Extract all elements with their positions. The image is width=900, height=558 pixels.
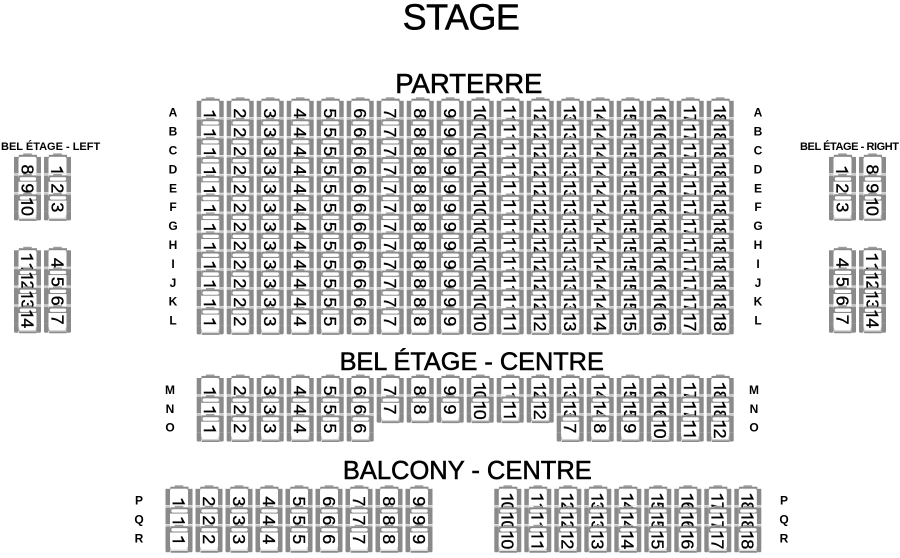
svg-text:2: 2: [230, 108, 250, 118]
svg-text:8: 8: [410, 165, 430, 175]
svg-text:7: 7: [832, 315, 852, 325]
svg-text:8: 8: [862, 165, 882, 175]
svg-text:2: 2: [832, 183, 852, 193]
svg-text:6: 6: [350, 108, 370, 118]
svg-text:6: 6: [350, 316, 370, 326]
svg-text:8: 8: [379, 515, 399, 525]
svg-text:4: 4: [290, 241, 310, 251]
svg-text:3: 3: [229, 534, 249, 544]
svg-text:8: 8: [410, 241, 430, 251]
svg-text:7: 7: [708, 539, 728, 549]
svg-text:7: 7: [380, 279, 400, 289]
svg-text:7: 7: [380, 316, 400, 326]
svg-text:5: 5: [320, 165, 340, 175]
svg-text:6: 6: [350, 279, 370, 289]
svg-text:9: 9: [440, 165, 460, 175]
svg-text:8: 8: [410, 405, 430, 415]
svg-text:3: 3: [260, 316, 280, 326]
svg-text:4: 4: [290, 423, 310, 433]
svg-text:3: 3: [260, 127, 280, 137]
svg-text:7: 7: [380, 386, 400, 396]
svg-text:0: 0: [17, 206, 37, 216]
svg-text:9: 9: [440, 297, 460, 307]
svg-text:7: 7: [680, 322, 700, 332]
svg-text:3: 3: [229, 496, 249, 506]
svg-text:2: 2: [230, 146, 250, 156]
svg-text:3: 3: [260, 279, 280, 289]
svg-text:9: 9: [440, 222, 460, 232]
svg-text:I: I: [171, 257, 174, 271]
svg-text:0: 0: [470, 322, 490, 332]
svg-text:E: E: [169, 181, 177, 195]
svg-text:H: H: [169, 238, 178, 252]
svg-text:7: 7: [380, 165, 400, 175]
svg-text:2: 2: [230, 316, 250, 326]
svg-text:2: 2: [530, 410, 550, 420]
svg-text:2: 2: [558, 539, 578, 549]
svg-text:8: 8: [410, 184, 430, 194]
svg-text:3: 3: [260, 260, 280, 270]
svg-text:D: D: [169, 162, 178, 176]
svg-text:4: 4: [290, 165, 310, 175]
svg-text:3: 3: [260, 297, 280, 307]
svg-text:9: 9: [440, 203, 460, 213]
svg-text:2: 2: [230, 203, 250, 213]
svg-text:C: C: [754, 144, 763, 158]
svg-text:6: 6: [319, 534, 339, 544]
svg-text:G: G: [168, 219, 177, 233]
svg-text:F: F: [169, 200, 176, 214]
svg-text:O: O: [749, 421, 758, 435]
svg-text:4: 4: [259, 534, 279, 544]
svg-text:6: 6: [350, 297, 370, 307]
svg-text:3: 3: [260, 165, 280, 175]
svg-text:6: 6: [319, 515, 339, 525]
svg-text:A: A: [169, 106, 178, 120]
svg-text:5: 5: [320, 241, 340, 251]
svg-text:2: 2: [530, 322, 550, 332]
svg-text:4: 4: [47, 258, 67, 268]
svg-text:BEL ÉTAGE - CENTRE: BEL ÉTAGE - CENTRE: [340, 347, 604, 376]
svg-text:6: 6: [350, 241, 370, 251]
svg-text:5: 5: [320, 203, 340, 213]
svg-text:N: N: [166, 402, 175, 416]
svg-text:BEL ÉTAGE - RIGHT: BEL ÉTAGE - RIGHT: [800, 140, 899, 153]
svg-text:I: I: [756, 257, 759, 271]
svg-text:2: 2: [230, 386, 250, 396]
svg-text:3: 3: [260, 423, 280, 433]
svg-text:L: L: [169, 314, 176, 328]
svg-text:0: 0: [650, 429, 670, 439]
svg-text:5: 5: [320, 127, 340, 137]
svg-text:7: 7: [380, 184, 400, 194]
svg-text:5: 5: [320, 184, 340, 194]
svg-text:3: 3: [260, 241, 280, 251]
svg-text:G: G: [753, 219, 762, 233]
svg-text:4: 4: [832, 258, 852, 268]
svg-text:8: 8: [410, 316, 430, 326]
svg-text:4: 4: [862, 318, 882, 328]
svg-text:2: 2: [230, 423, 250, 433]
svg-text:Q: Q: [779, 513, 788, 527]
svg-text:2: 2: [47, 183, 67, 193]
svg-text:M: M: [749, 383, 759, 397]
svg-text:4: 4: [290, 203, 310, 213]
svg-text:7: 7: [380, 405, 400, 415]
svg-text:9: 9: [409, 496, 429, 506]
svg-text:3: 3: [260, 203, 280, 213]
svg-text:2: 2: [710, 429, 730, 439]
svg-text:2: 2: [199, 515, 219, 525]
svg-text:8: 8: [379, 496, 399, 506]
svg-text:5: 5: [289, 534, 309, 544]
svg-text:7: 7: [380, 260, 400, 270]
svg-text:7: 7: [380, 203, 400, 213]
svg-text:Q: Q: [134, 513, 143, 527]
svg-text:L: L: [754, 314, 761, 328]
svg-text:8: 8: [410, 127, 430, 137]
svg-text:A: A: [754, 106, 763, 120]
svg-text:8: 8: [410, 297, 430, 307]
svg-text:0: 0: [470, 410, 490, 420]
svg-text:7: 7: [349, 534, 369, 544]
svg-text:J: J: [170, 276, 177, 290]
svg-text:4: 4: [290, 386, 310, 396]
svg-text:8: 8: [738, 539, 758, 549]
svg-text:3: 3: [832, 202, 852, 212]
svg-text:5: 5: [320, 146, 340, 156]
svg-text:5: 5: [289, 515, 309, 525]
svg-text:STAGE: STAGE: [403, 0, 520, 38]
svg-text:5: 5: [620, 322, 640, 332]
svg-text:K: K: [169, 295, 178, 309]
svg-text:2: 2: [230, 165, 250, 175]
svg-text:8: 8: [410, 108, 430, 118]
svg-text:2: 2: [230, 260, 250, 270]
svg-text:9: 9: [409, 515, 429, 525]
svg-text:9: 9: [440, 316, 460, 326]
svg-text:4: 4: [290, 184, 310, 194]
svg-text:9: 9: [440, 146, 460, 156]
svg-text:R: R: [780, 532, 789, 546]
svg-text:2: 2: [199, 496, 219, 506]
svg-text:9: 9: [17, 183, 37, 193]
svg-text:6: 6: [350, 260, 370, 270]
svg-text:4: 4: [590, 322, 610, 332]
svg-text:8: 8: [590, 423, 610, 433]
svg-text:7: 7: [349, 515, 369, 525]
svg-text:4: 4: [290, 405, 310, 415]
svg-text:3: 3: [260, 386, 280, 396]
svg-text:6: 6: [350, 423, 370, 433]
svg-text:5: 5: [832, 277, 852, 287]
svg-text:P: P: [135, 494, 143, 508]
svg-text:4: 4: [290, 279, 310, 289]
svg-text:4: 4: [290, 127, 310, 137]
svg-text:2: 2: [230, 184, 250, 194]
svg-text:6: 6: [350, 146, 370, 156]
svg-text:6: 6: [319, 496, 339, 506]
svg-text:5: 5: [289, 496, 309, 506]
svg-text:N: N: [750, 402, 759, 416]
svg-text:3: 3: [47, 202, 67, 212]
svg-text:2: 2: [230, 127, 250, 137]
svg-text:6: 6: [832, 296, 852, 306]
svg-text:5: 5: [320, 297, 340, 307]
svg-text:8: 8: [410, 222, 430, 232]
svg-text:3: 3: [260, 108, 280, 118]
svg-text:2: 2: [230, 222, 250, 232]
svg-text:9: 9: [440, 108, 460, 118]
svg-text:C: C: [169, 144, 178, 158]
svg-text:0: 0: [862, 206, 882, 216]
svg-text:3: 3: [260, 222, 280, 232]
svg-text:4: 4: [290, 260, 310, 270]
svg-text:9: 9: [440, 260, 460, 270]
svg-text:6: 6: [350, 405, 370, 415]
svg-text:5: 5: [648, 539, 668, 549]
svg-text:5: 5: [47, 277, 67, 287]
svg-text:6: 6: [47, 296, 67, 306]
svg-text:5: 5: [320, 386, 340, 396]
svg-text:4: 4: [290, 146, 310, 156]
svg-text:3: 3: [260, 184, 280, 194]
svg-text:7: 7: [380, 146, 400, 156]
svg-text:5: 5: [320, 316, 340, 326]
svg-text:8: 8: [379, 534, 399, 544]
svg-text:9: 9: [620, 423, 640, 433]
svg-text:6: 6: [350, 222, 370, 232]
svg-text:2: 2: [230, 241, 250, 251]
svg-text:9: 9: [440, 127, 460, 137]
svg-text:9: 9: [440, 184, 460, 194]
svg-text:8: 8: [410, 279, 430, 289]
svg-text:3: 3: [560, 322, 580, 332]
svg-text:E: E: [754, 181, 762, 195]
svg-text:9: 9: [440, 405, 460, 415]
svg-text:7: 7: [380, 222, 400, 232]
svg-text:8: 8: [710, 322, 730, 332]
svg-text:6: 6: [350, 127, 370, 137]
svg-text:BALCONY - CENTRE: BALCONY - CENTRE: [343, 457, 592, 485]
svg-text:5: 5: [320, 423, 340, 433]
svg-text:PARTERRE: PARTERRE: [395, 68, 542, 99]
svg-text:B: B: [754, 125, 763, 139]
svg-text:R: R: [135, 532, 144, 546]
svg-text:5: 5: [320, 222, 340, 232]
svg-text:M: M: [165, 383, 175, 397]
svg-text:5: 5: [320, 405, 340, 415]
svg-text:7: 7: [349, 496, 369, 506]
svg-text:9: 9: [440, 279, 460, 289]
svg-text:7: 7: [380, 108, 400, 118]
svg-text:0: 0: [498, 539, 518, 549]
svg-text:9: 9: [409, 534, 429, 544]
svg-text:9: 9: [440, 241, 460, 251]
svg-text:4: 4: [290, 316, 310, 326]
svg-text:3: 3: [588, 539, 608, 549]
svg-text:7: 7: [380, 297, 400, 307]
svg-text:2: 2: [199, 534, 219, 544]
svg-text:2: 2: [230, 279, 250, 289]
svg-text:BEL ÉTAGE - LEFT: BEL ÉTAGE - LEFT: [1, 140, 100, 153]
svg-text:8: 8: [410, 260, 430, 270]
svg-text:8: 8: [17, 165, 37, 175]
svg-text:4: 4: [259, 496, 279, 506]
svg-text:9: 9: [440, 386, 460, 396]
svg-text:4: 4: [290, 297, 310, 307]
svg-text:7: 7: [380, 127, 400, 137]
svg-text:P: P: [780, 494, 788, 508]
svg-text:8: 8: [410, 146, 430, 156]
svg-text:4: 4: [618, 539, 638, 549]
svg-text:D: D: [754, 162, 763, 176]
svg-text:4: 4: [17, 318, 37, 328]
svg-text:3: 3: [229, 515, 249, 525]
svg-text:6: 6: [350, 184, 370, 194]
svg-text:2: 2: [230, 297, 250, 307]
svg-text:4: 4: [290, 222, 310, 232]
svg-text:6: 6: [350, 386, 370, 396]
svg-text:8: 8: [410, 203, 430, 213]
svg-text:2: 2: [230, 405, 250, 415]
svg-text:5: 5: [320, 108, 340, 118]
svg-text:8: 8: [410, 386, 430, 396]
svg-text:4: 4: [290, 108, 310, 118]
svg-text:7: 7: [560, 423, 580, 433]
svg-text:B: B: [169, 125, 178, 139]
svg-text:5: 5: [320, 279, 340, 289]
svg-text:3: 3: [260, 146, 280, 156]
svg-text:3: 3: [260, 405, 280, 415]
svg-text:6: 6: [350, 203, 370, 213]
svg-text:O: O: [165, 421, 174, 435]
svg-text:7: 7: [380, 241, 400, 251]
svg-text:7: 7: [47, 315, 67, 325]
svg-text:6: 6: [650, 322, 670, 332]
svg-text:4: 4: [259, 515, 279, 525]
svg-text:F: F: [754, 200, 761, 214]
svg-text:H: H: [754, 238, 763, 252]
svg-text:5: 5: [320, 260, 340, 270]
svg-text:6: 6: [350, 165, 370, 175]
svg-text:9: 9: [862, 183, 882, 193]
svg-text:K: K: [754, 295, 763, 309]
svg-text:J: J: [755, 276, 762, 290]
svg-text:6: 6: [678, 539, 698, 549]
